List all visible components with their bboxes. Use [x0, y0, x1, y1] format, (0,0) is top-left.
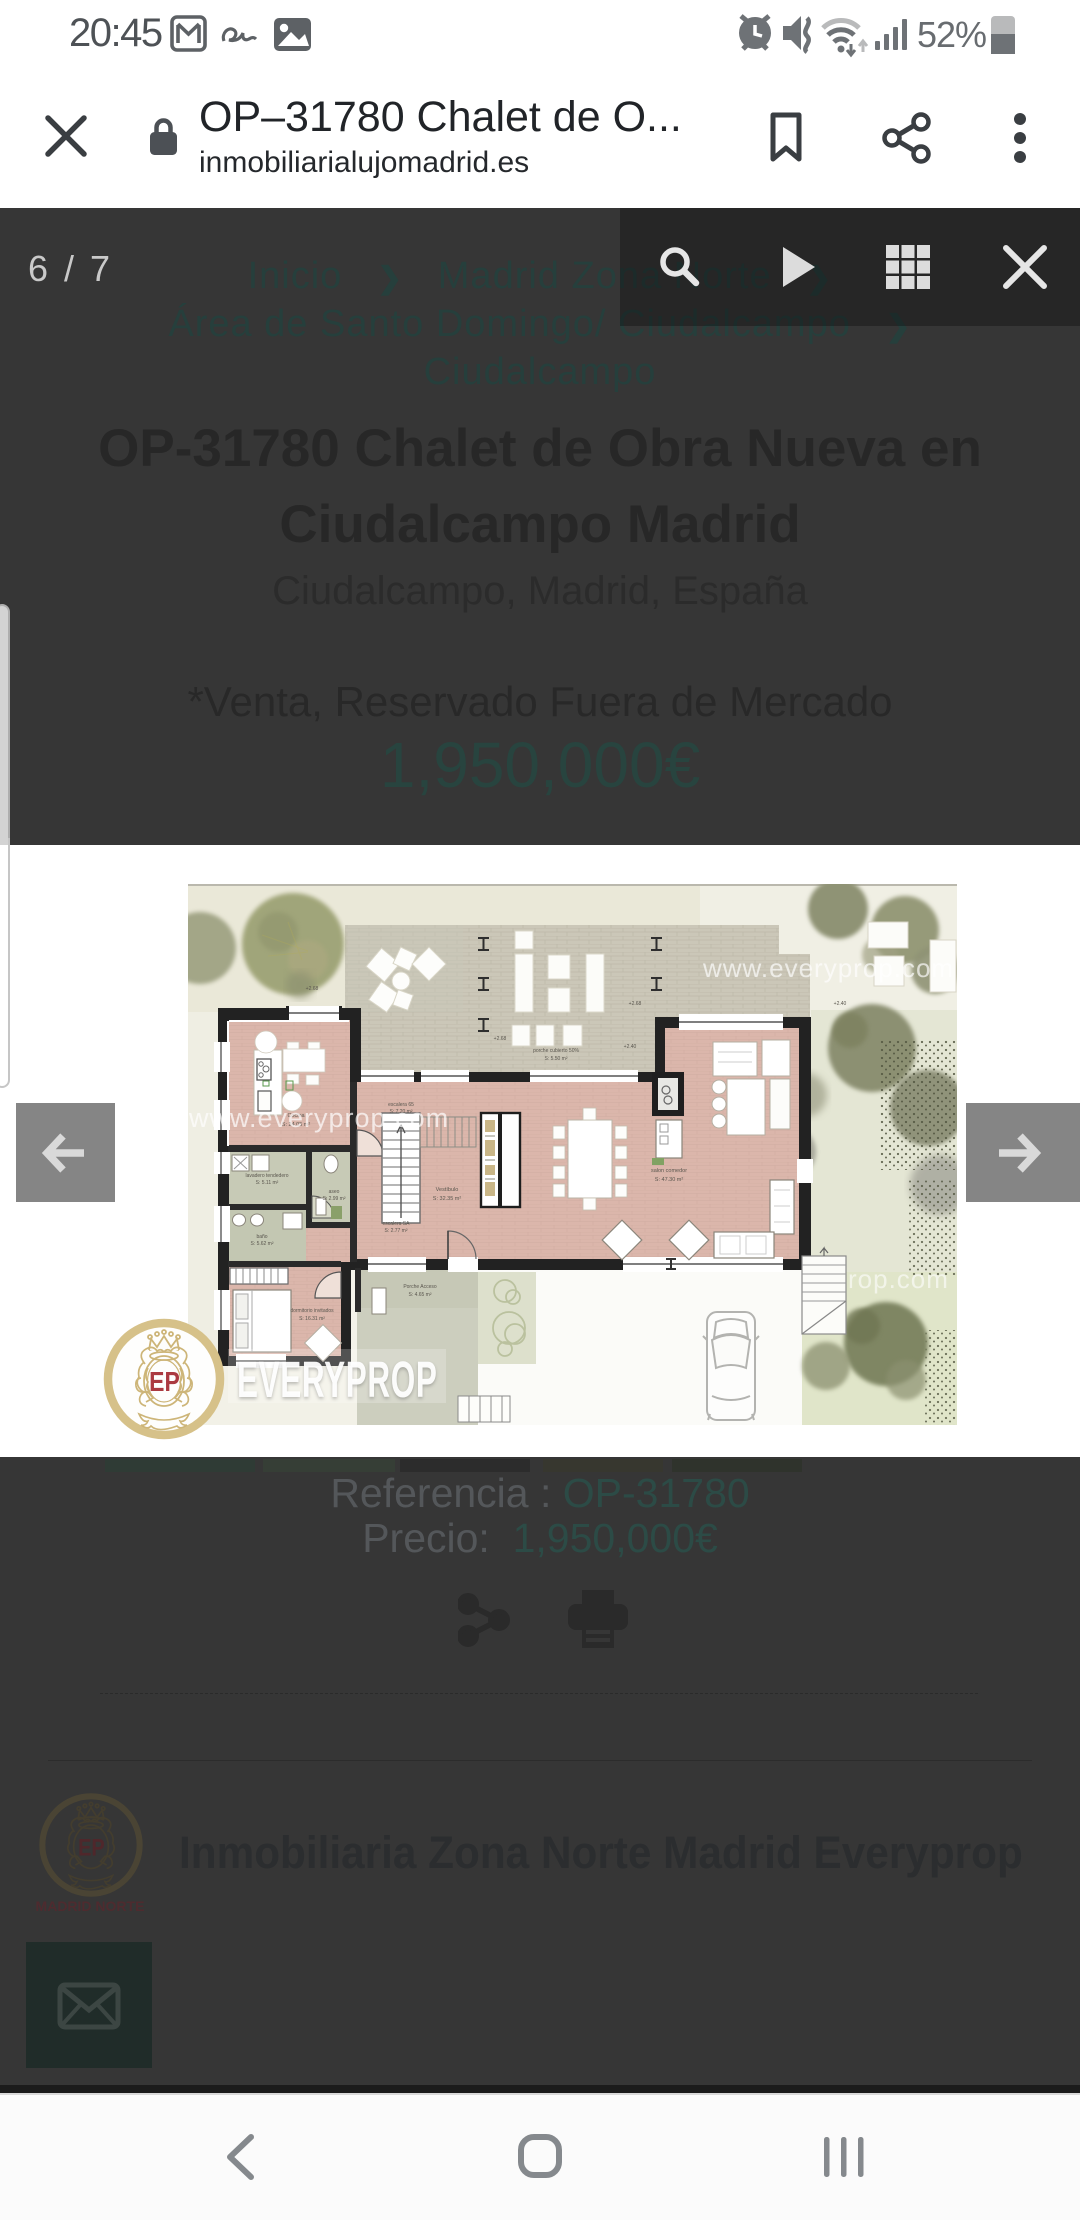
- svg-text:+2.68: +2.68: [629, 1001, 642, 1007]
- svg-text:S: 2.99 m²: S: 2.99 m²: [322, 1196, 345, 1202]
- svg-text:S: 4.65 m²: S: 4.65 m²: [408, 1292, 431, 1298]
- svg-text:porche cubierto 50%: porche cubierto 50%: [533, 1048, 579, 1054]
- svg-text:+2.40: +2.40: [624, 1044, 637, 1050]
- svg-text:+2.68: +2.68: [306, 986, 319, 992]
- svg-text:S: 32.35 m²: S: 32.35 m²: [433, 1196, 462, 1202]
- svg-text:escalera SA: escalera SA: [383, 1221, 411, 1227]
- svg-text:+2.68: +2.68: [494, 1036, 507, 1042]
- svg-text:aseo: aseo: [329, 1189, 340, 1195]
- svg-text:S: 5.11 m²: S: 5.11 m²: [256, 1180, 279, 1186]
- svg-text:+2.40: +2.40: [834, 1001, 847, 1007]
- svg-text:Vestíbulo: Vestíbulo: [436, 1187, 459, 1193]
- svg-text:www.everyprop.com: www.everyprop.com: [702, 953, 954, 983]
- svg-text:S: 16.31 m²: S: 16.31 m²: [299, 1316, 325, 1322]
- svg-text:S: 5.62 m²: S: 5.62 m²: [250, 1241, 273, 1247]
- svg-text:EP: EP: [78, 1834, 105, 1861]
- svg-text:dormitorio invitados: dormitorio invitados: [290, 1308, 334, 1314]
- svg-text:salon comedor: salon comedor: [651, 1168, 687, 1174]
- svg-text:lavadero tendedero: lavadero tendedero: [245, 1173, 288, 1179]
- svg-text:baño: baño: [256, 1234, 267, 1240]
- svg-text:S: 47.30 m²: S: 47.30 m²: [655, 1177, 684, 1183]
- svg-text:rop.com: rop.com: [848, 1264, 949, 1294]
- svg-text:EP: EP: [149, 1367, 180, 1398]
- svg-text:52%: 52%: [917, 14, 986, 55]
- svg-text:S: 5.50 m²: S: 5.50 m²: [544, 1056, 567, 1062]
- svg-text:S: 2.77 m²: S: 2.77 m²: [384, 1228, 407, 1234]
- svg-text:www.everyprop.com: www.everyprop.com: [188, 1103, 449, 1133]
- svg-text:Porche Acceso: Porche Acceso: [403, 1284, 437, 1290]
